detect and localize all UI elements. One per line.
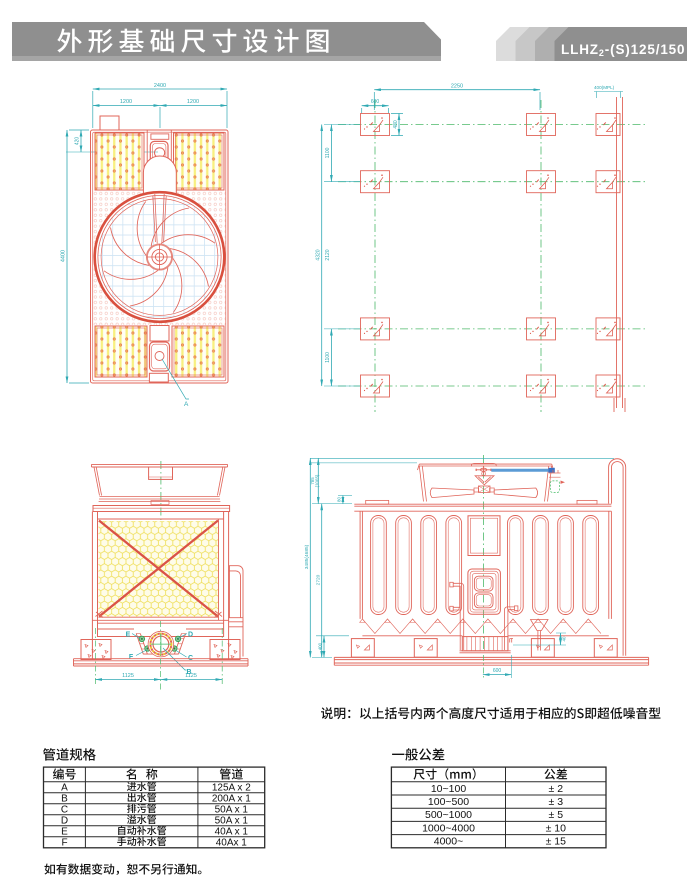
svg-text:2120: 2120 bbox=[325, 249, 331, 260]
svg-text:E: E bbox=[61, 826, 68, 837]
svg-text:± 2: ± 2 bbox=[549, 783, 564, 795]
svg-text:4320: 4320 bbox=[315, 249, 321, 260]
svg-text:C: C bbox=[61, 804, 68, 815]
svg-text:4000~: 4000~ bbox=[434, 836, 464, 848]
svg-text:± 10: ± 10 bbox=[546, 822, 567, 834]
svg-text:400(MPL): 400(MPL) bbox=[594, 85, 615, 90]
svg-text:F: F bbox=[61, 837, 67, 848]
svg-text:40: 40 bbox=[562, 636, 567, 641]
svg-text:200A x 1: 200A x 1 bbox=[212, 793, 251, 804]
svg-text:E: E bbox=[126, 632, 131, 639]
svg-text:500~1000: 500~1000 bbox=[425, 809, 472, 821]
svg-text:40Ax 1: 40Ax 1 bbox=[216, 837, 248, 848]
svg-text:4400: 4400 bbox=[61, 250, 67, 262]
svg-text:F: F bbox=[129, 654, 134, 661]
svg-text:10~100: 10~100 bbox=[431, 783, 466, 795]
svg-text:420: 420 bbox=[75, 137, 81, 146]
svg-text:D: D bbox=[188, 632, 193, 639]
svg-text:D: D bbox=[61, 815, 68, 826]
svg-text:± 5: ± 5 bbox=[549, 809, 564, 821]
svg-text:± 15: ± 15 bbox=[546, 836, 567, 848]
svg-text:1125: 1125 bbox=[185, 673, 197, 679]
svg-text:2720: 2720 bbox=[315, 574, 321, 585]
svg-text:600: 600 bbox=[371, 99, 380, 105]
svg-text:± 3: ± 3 bbox=[549, 796, 564, 808]
svg-text:80: 80 bbox=[337, 497, 342, 502]
svg-text:(1065): (1065) bbox=[315, 474, 320, 487]
svg-text:50A x 1: 50A x 1 bbox=[215, 804, 249, 815]
svg-text:3485(4685): 3485(4685) bbox=[304, 544, 310, 569]
svg-text:40A x 1: 40A x 1 bbox=[215, 826, 249, 837]
svg-text:B: B bbox=[61, 793, 68, 804]
svg-text:A: A bbox=[61, 782, 68, 793]
svg-text:A: A bbox=[184, 401, 189, 408]
svg-text:1100: 1100 bbox=[325, 147, 331, 158]
svg-text:125A x 2: 125A x 2 bbox=[212, 782, 251, 793]
svg-text:1000~4000: 1000~4000 bbox=[422, 822, 475, 834]
svg-text:1125: 1125 bbox=[122, 673, 134, 679]
svg-text:100~500: 100~500 bbox=[428, 796, 469, 808]
svg-text:2250: 2250 bbox=[451, 83, 463, 89]
svg-text:400: 400 bbox=[318, 642, 323, 650]
svg-text:1200: 1200 bbox=[120, 99, 132, 105]
svg-text:2400: 2400 bbox=[154, 83, 166, 89]
svg-text:1200: 1200 bbox=[187, 99, 199, 105]
svg-text:600: 600 bbox=[493, 668, 502, 674]
svg-text:50A x 1: 50A x 1 bbox=[215, 815, 249, 826]
svg-text:1100: 1100 bbox=[325, 352, 331, 363]
svg-text:LLHZ2-(S)125/150: LLHZ2-(S)125/150 bbox=[561, 42, 685, 58]
svg-text:480: 480 bbox=[393, 120, 399, 129]
